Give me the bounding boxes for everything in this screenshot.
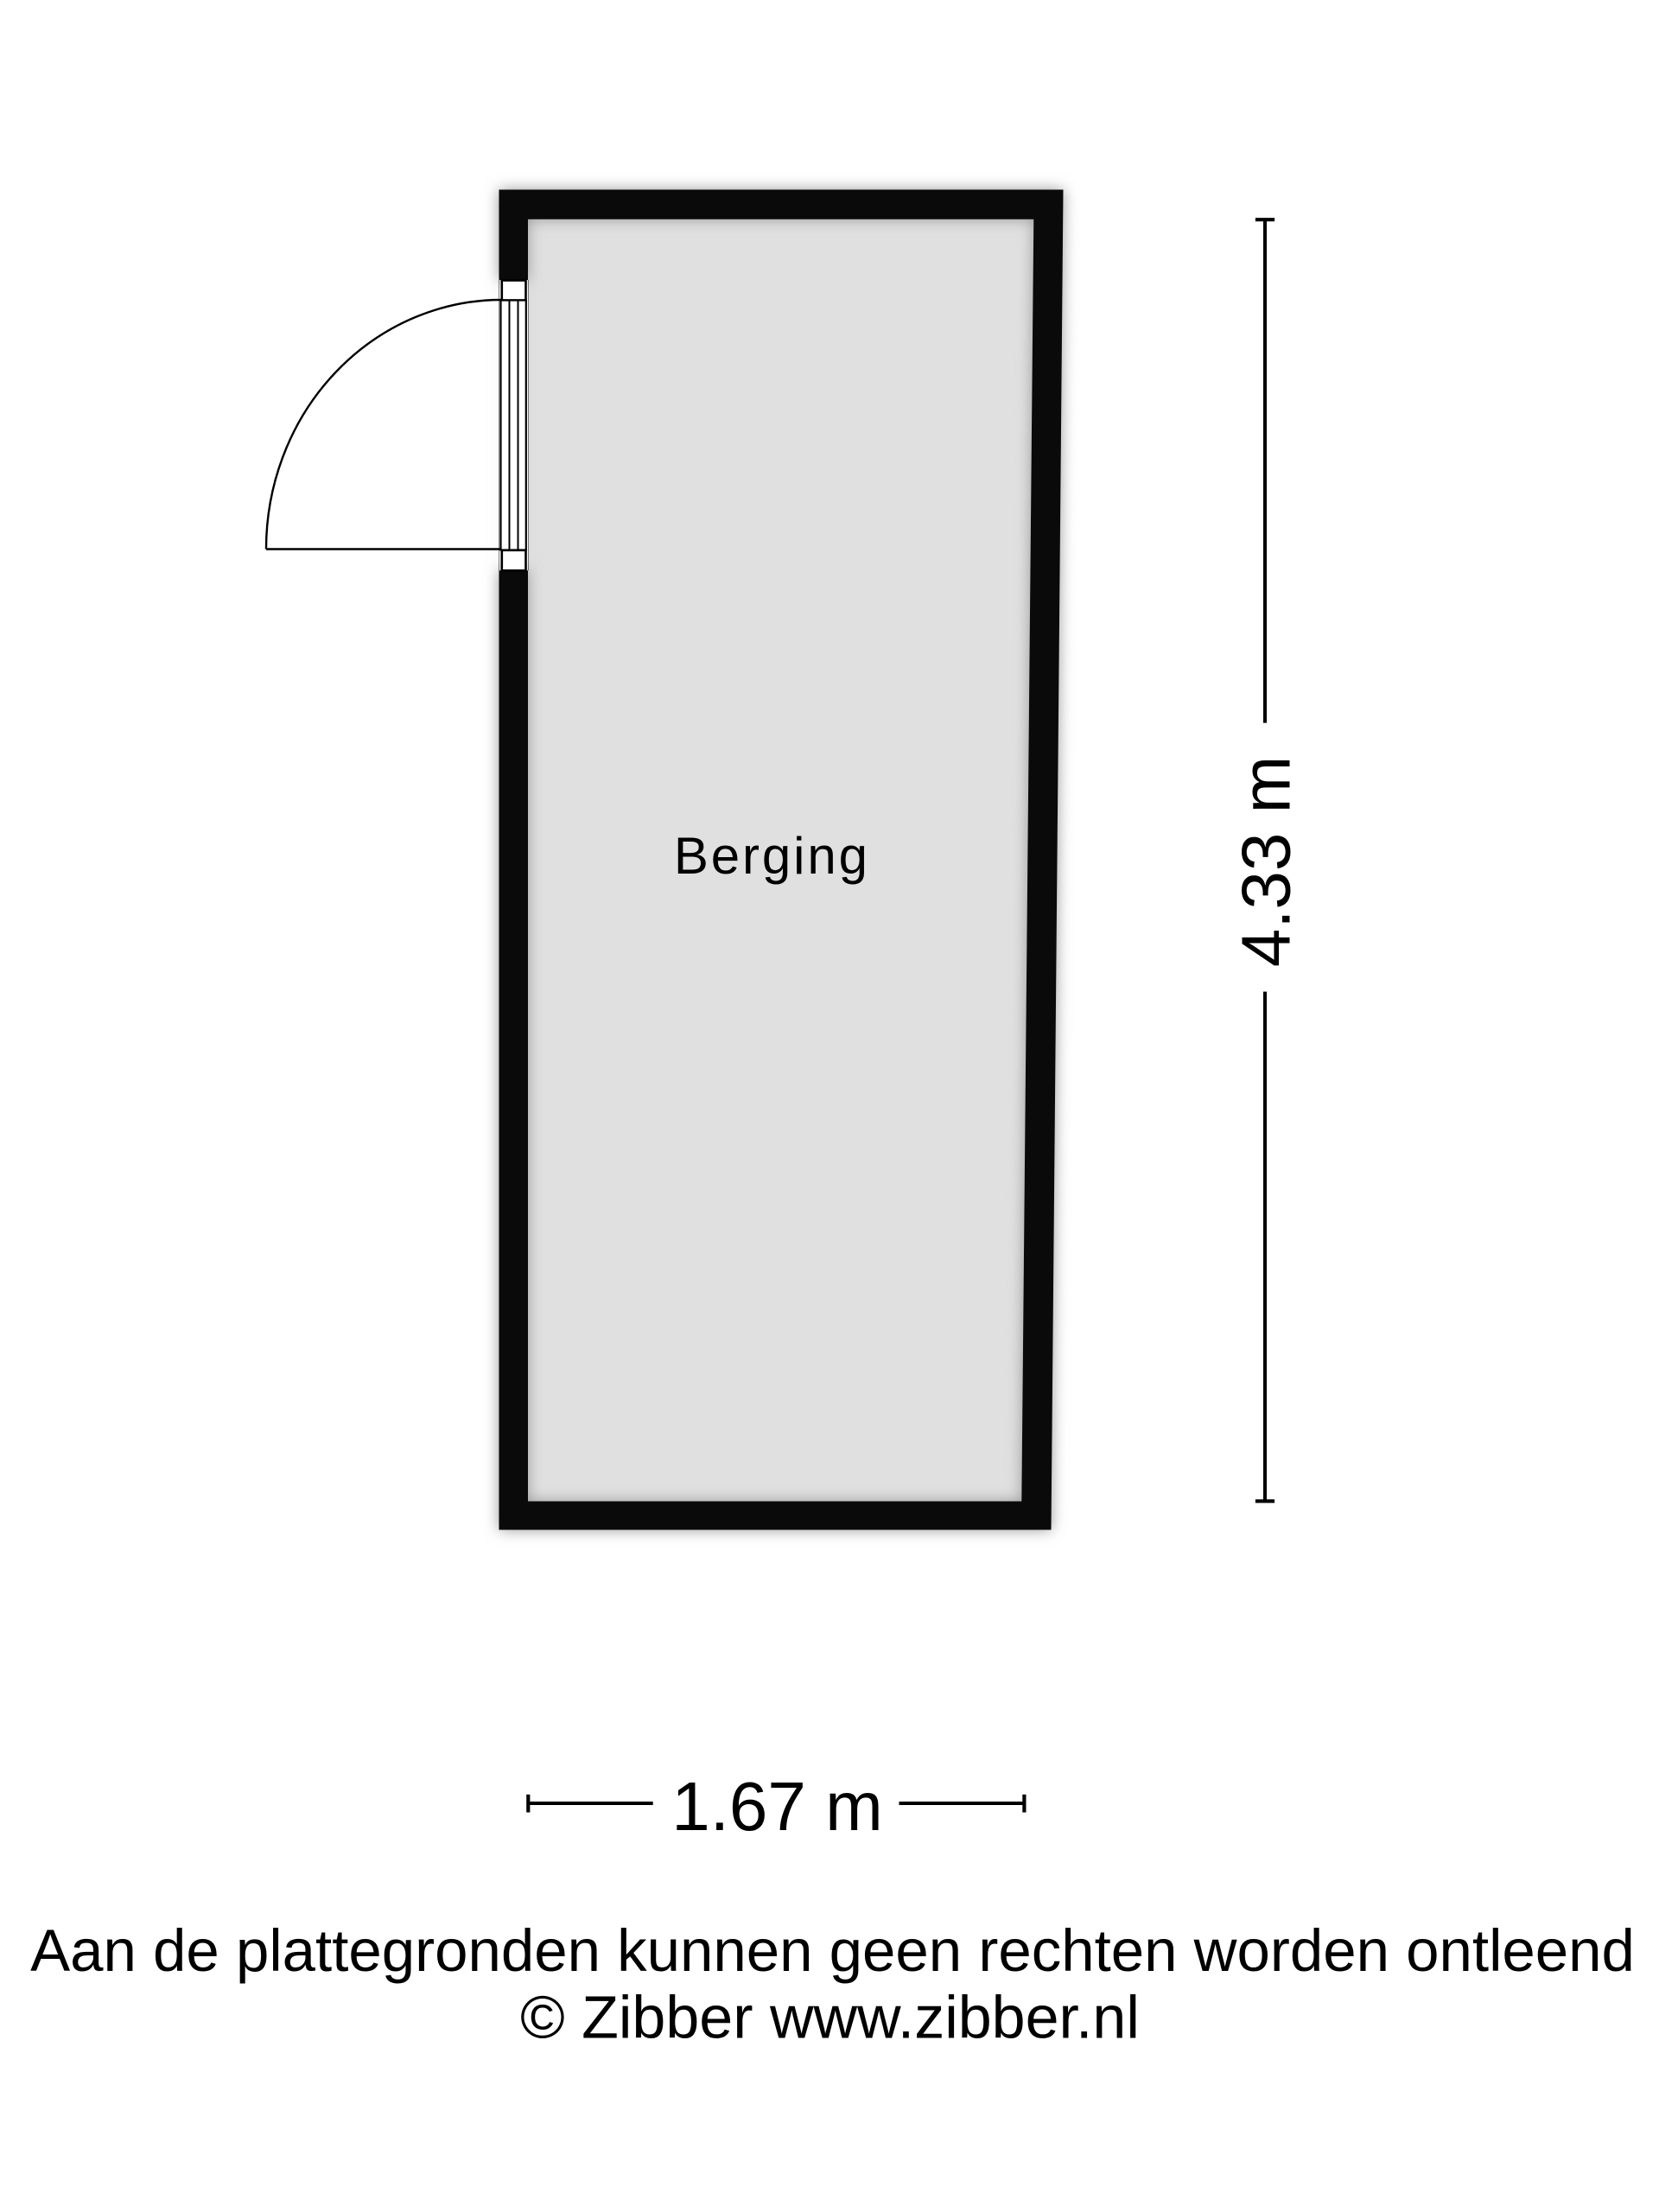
svg-text:4.33 m: 4.33 m	[1228, 756, 1305, 968]
svg-text:Berging: Berging	[674, 827, 870, 885]
svg-text:1.67 m: 1.67 m	[671, 1768, 883, 1845]
svg-text:Aan de plattegronden kunnen ge: Aan de plattegronden kunnen geen rechten…	[30, 1917, 1635, 1984]
svg-text:© Zibber www.zibber.nl: © Zibber www.zibber.nl	[520, 1984, 1140, 2051]
